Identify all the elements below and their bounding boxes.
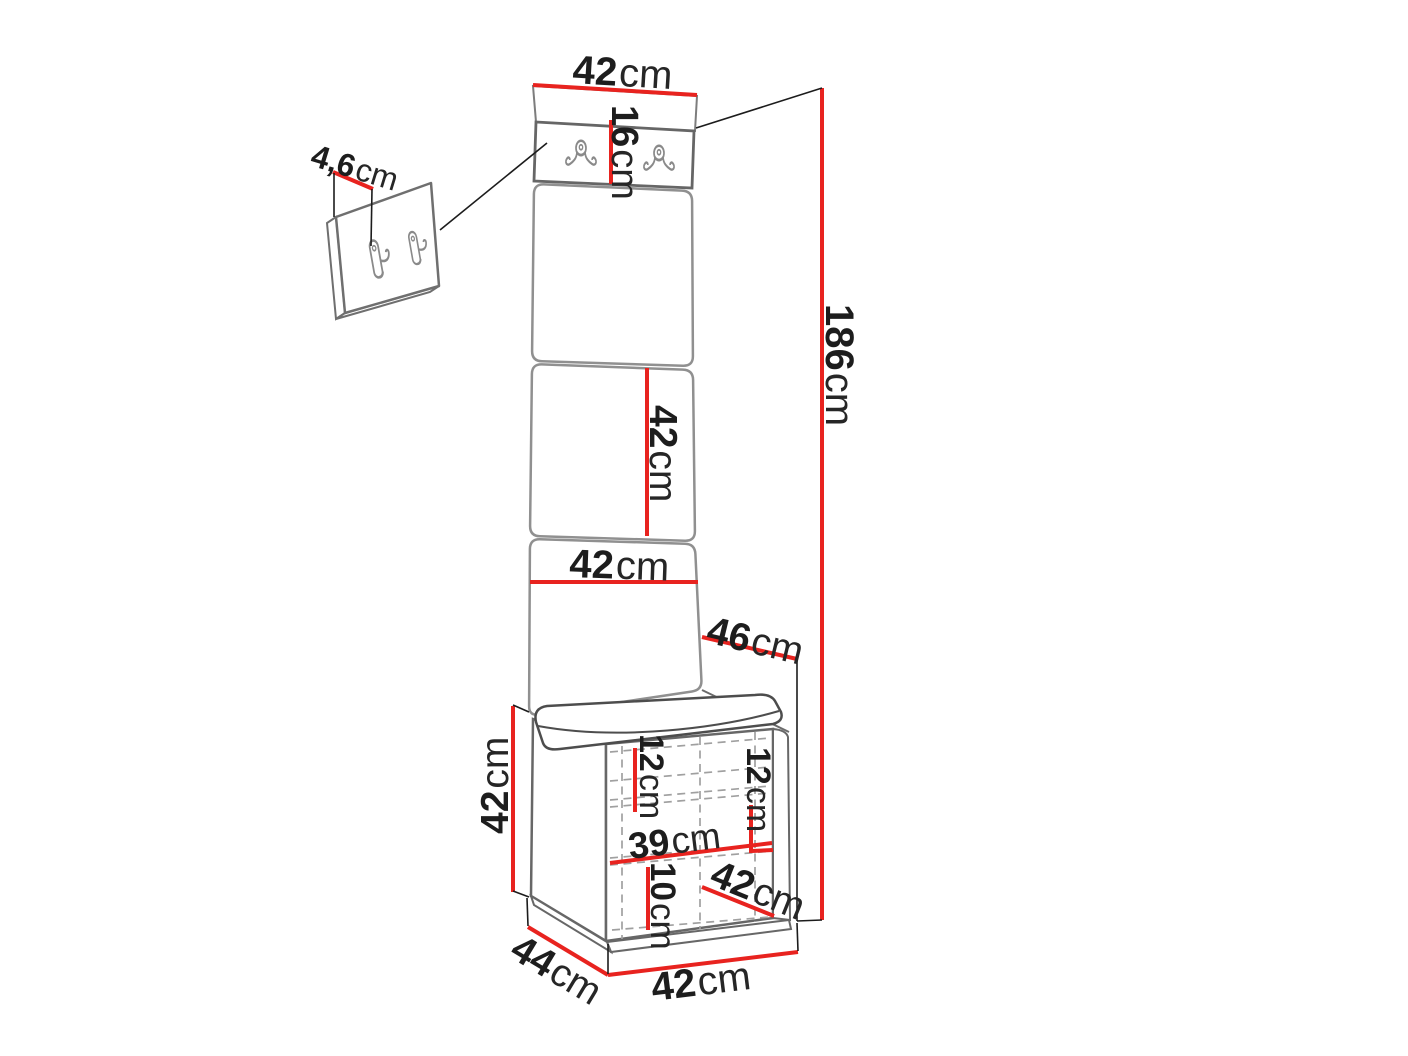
extension-line [527,898,528,926]
wall-hook-panel-detail [327,183,439,319]
label-total-height: 186cm [817,304,861,426]
label-hook-panel-depth: 4,6cm [307,137,403,197]
label-bench-height: 42cm [474,737,517,834]
leader-line-hook-panel [440,143,547,230]
diagram-drawing: 42cm 16cm 186cm 42cm 42cm 46cm 42cm 12cm… [0,0,1408,1056]
extension-line [797,923,798,951]
label-middle-segment-height: 42cm [641,405,684,502]
label-top-width: 42cm [571,48,673,98]
extension-tick [513,705,529,712]
label-bench-width: 42cm [649,954,753,1010]
extension-line-total-height-bottom [797,920,822,921]
label-seat-depth: 46cm [703,609,808,674]
label-upper-shelf-gap: 12cm [632,734,670,819]
label-right-shelf-gap: 12cm [739,747,777,832]
label-panel-width: 42cm [569,542,670,589]
extension-line [371,189,372,246]
label-bottom-shelf-gap: 10cm [643,862,682,950]
extension-tick [513,891,529,897]
upholstered-segment-1 [532,184,693,365]
furniture-dimension-diagram: 42cm 16cm 186cm 42cm 42cm 46cm 42cm 12cm… [0,0,1408,1056]
label-hook-strip-height: 16cm [603,105,645,200]
extension-line-total-height-top [696,88,822,128]
